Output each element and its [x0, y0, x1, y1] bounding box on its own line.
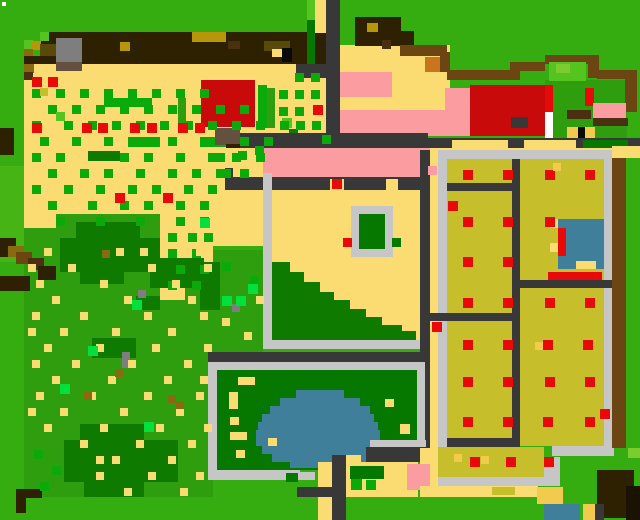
pixel-world-map-canvas	[0, 0, 640, 520]
game-map-view	[0, 0, 640, 520]
